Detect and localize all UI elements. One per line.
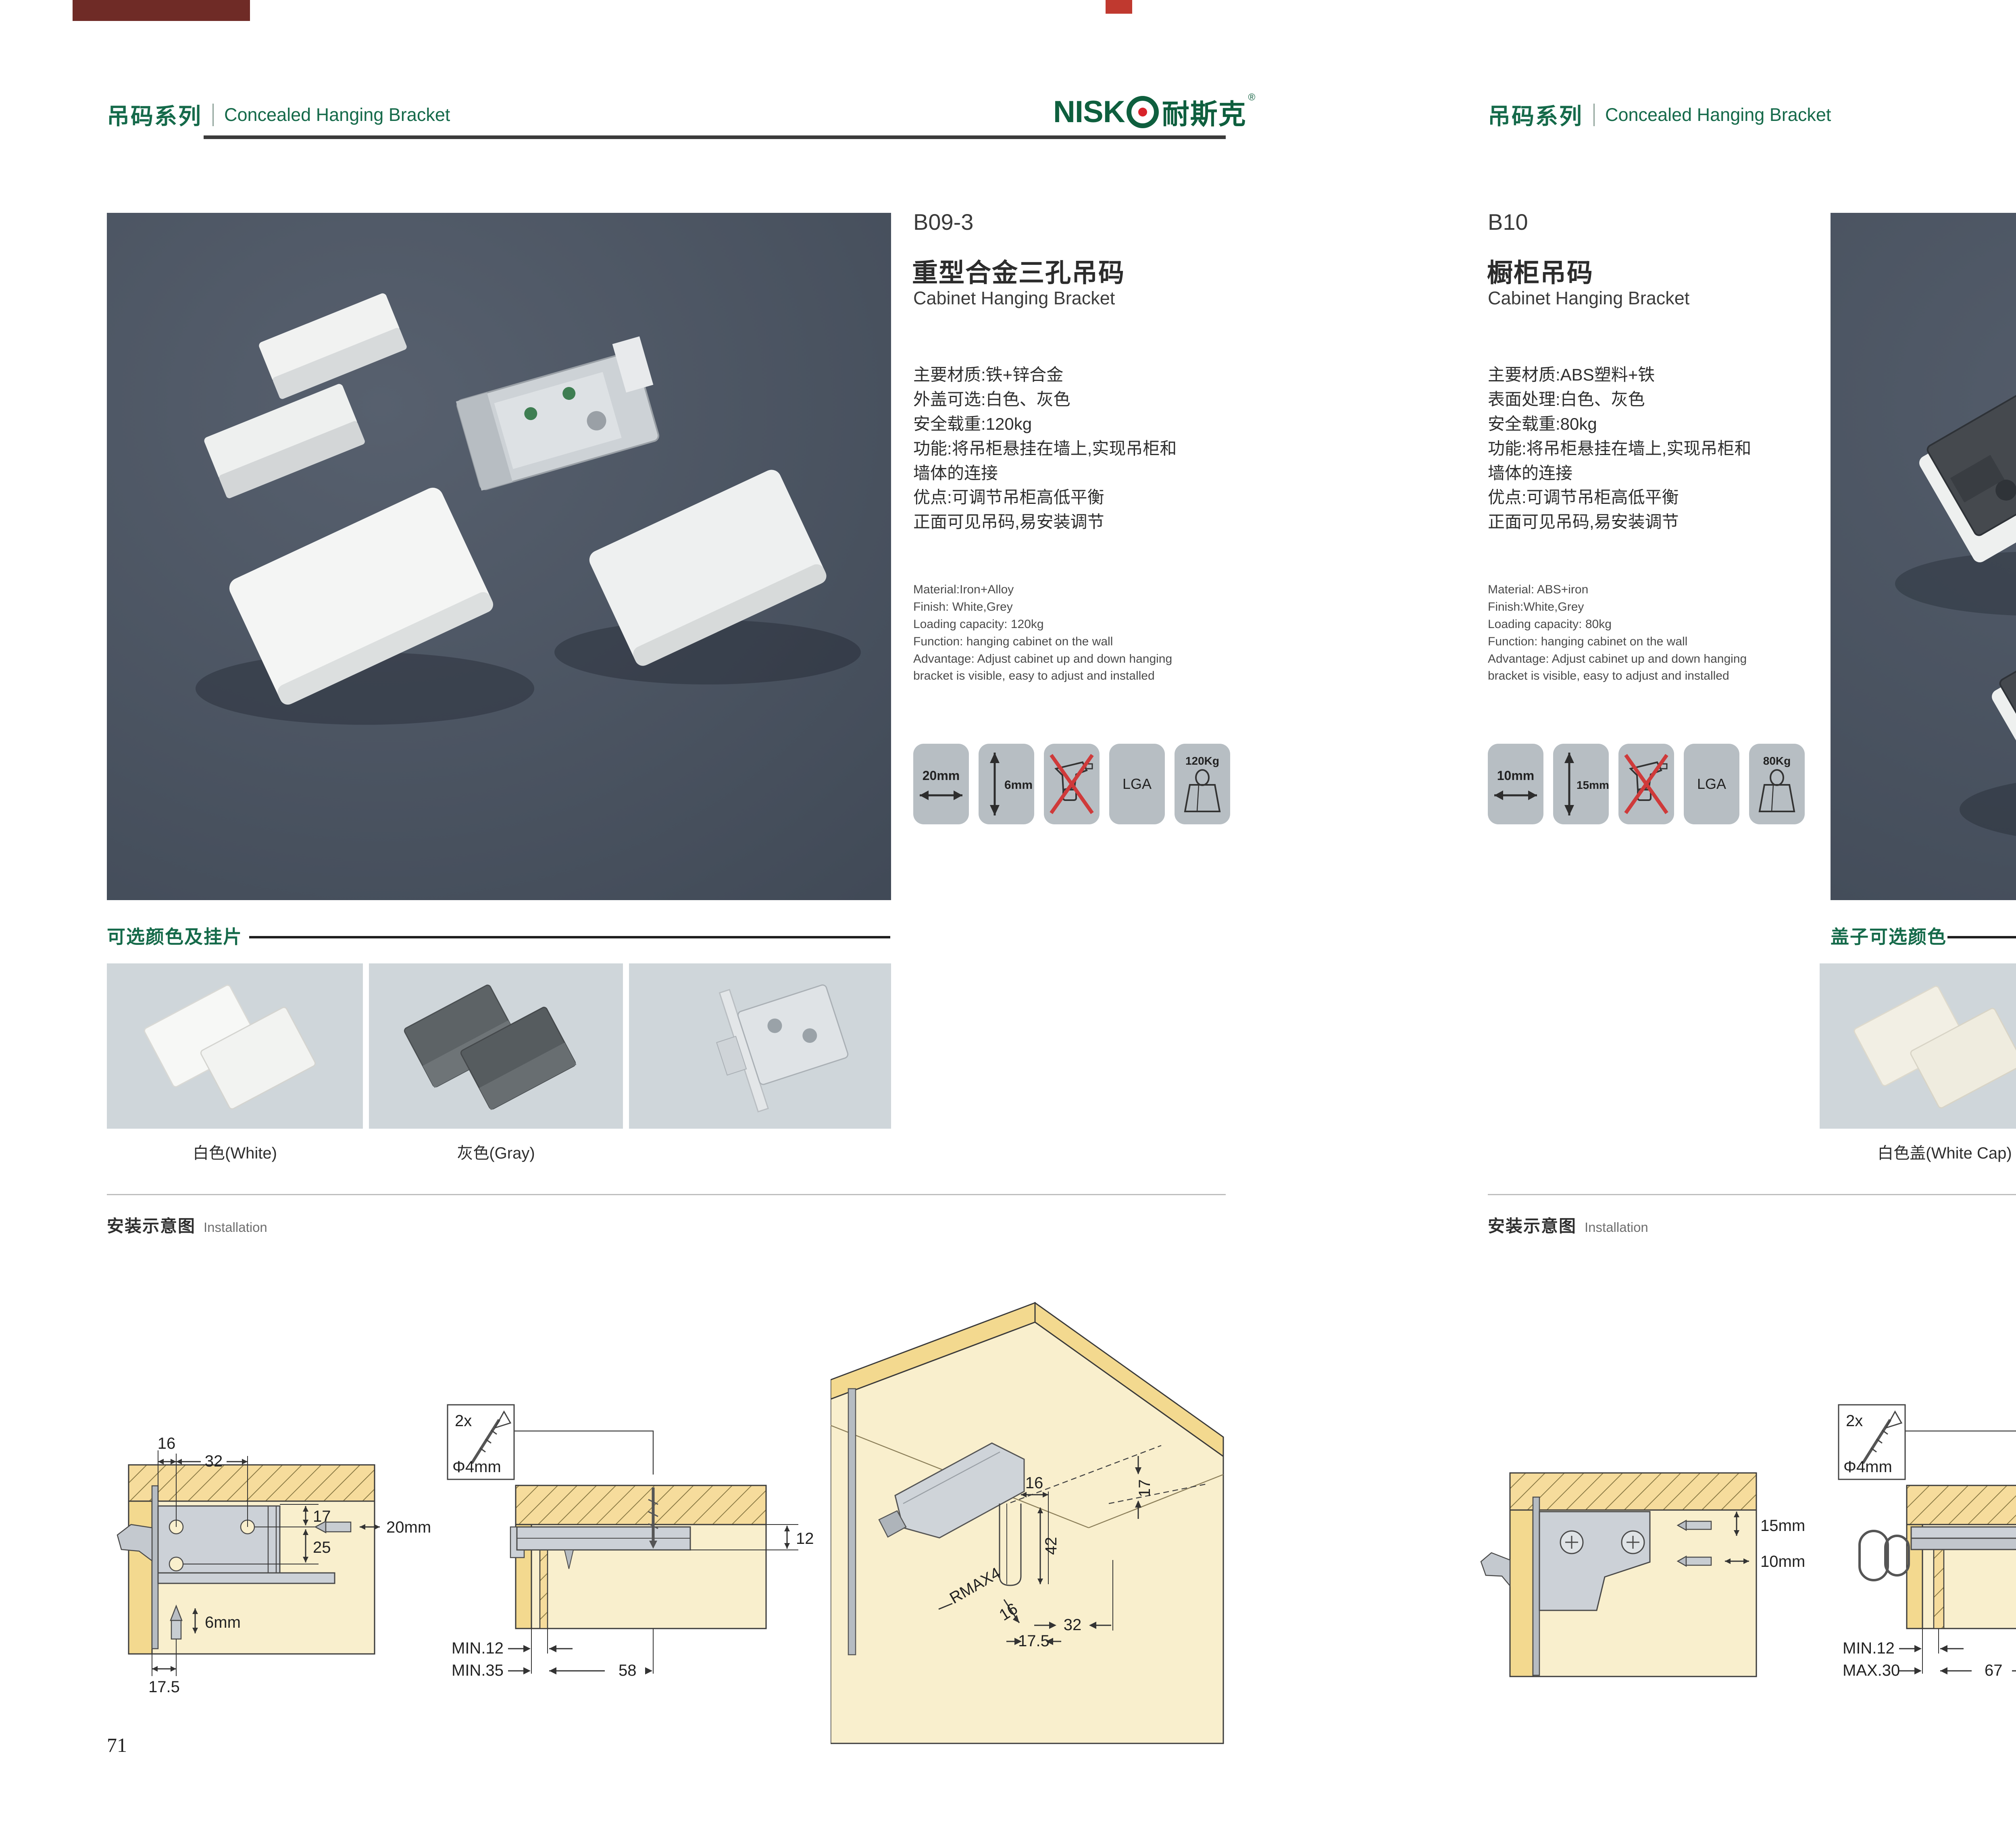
product-title-cn: 重型合金三孔吊码 xyxy=(912,252,1125,289)
spec-line: bracket is visible, easy to adjust and i… xyxy=(913,668,1341,685)
svg-text:6mm: 6mm xyxy=(205,1614,241,1631)
svg-text:15mm: 15mm xyxy=(1577,779,1609,791)
svg-text:MAX.30: MAX.30 xyxy=(1843,1662,1900,1679)
page-number-left: 71 xyxy=(107,1733,127,1757)
svg-text:15mm: 15mm xyxy=(1760,1517,1805,1535)
install-title-en: Installation xyxy=(204,1220,267,1235)
svg-text:67: 67 xyxy=(1985,1662,2003,1679)
spec-line: 墙体的连接 xyxy=(913,461,1341,486)
print-mark-bar xyxy=(73,0,250,21)
svg-text:MIN.35: MIN.35 xyxy=(452,1662,504,1679)
badge-no-drill xyxy=(1618,744,1674,824)
weight-icon xyxy=(1185,770,1220,811)
svg-text:25: 25 xyxy=(313,1539,331,1556)
svg-text:Φ4mm: Φ4mm xyxy=(1843,1458,1892,1476)
badge-lga: LGA xyxy=(1109,744,1165,824)
colors-section-rule-left xyxy=(249,936,890,938)
spec-line: 主要材质:铁+锌合金 xyxy=(913,363,1341,387)
svg-text:120Kg: 120Kg xyxy=(1185,755,1219,767)
weight-icon xyxy=(1760,770,1794,811)
swatch-gray xyxy=(369,963,623,1129)
svg-text:32: 32 xyxy=(1064,1616,1082,1634)
divider-left xyxy=(107,1194,1226,1195)
svg-text:2x: 2x xyxy=(1846,1412,1863,1430)
brand-logo-left: NISK 耐斯克 ® xyxy=(1053,92,1255,132)
colors-section-rule-right xyxy=(1947,936,2016,938)
svg-text:2x: 2x xyxy=(455,1412,472,1430)
svg-text:17.5: 17.5 xyxy=(1018,1632,1050,1650)
drill-crossed-icon xyxy=(1626,755,1667,813)
arrow-vertical-icon xyxy=(1564,753,1574,815)
svg-text:10mm: 10mm xyxy=(1497,768,1535,783)
svg-text:10mm: 10mm xyxy=(1760,1553,1805,1570)
install-diagram-right-1: 15mm 10mm xyxy=(1472,1391,1835,1735)
product-photo-b09-3 xyxy=(107,213,891,900)
header-left: 吊码系列 Concealed Hanging Bracket xyxy=(107,98,450,131)
product-code: B10 xyxy=(1488,209,1528,235)
svg-text:MIN.12: MIN.12 xyxy=(452,1639,504,1657)
swatch-label-white-cap: 白色盖(White Cap) xyxy=(1820,1140,2016,1163)
series-title-cn: 吊码系列 xyxy=(107,98,202,131)
wire-hook xyxy=(1860,1531,1909,1580)
badge-height: 6mm xyxy=(979,744,1034,824)
install-title-cn: 安装示意图 xyxy=(1488,1213,1577,1237)
product-code: B09-3 xyxy=(913,209,973,235)
print-mark-small xyxy=(1106,0,1132,14)
badge-no-drill xyxy=(1044,744,1100,824)
install-diagram-left-2: 2x Φ4mm xyxy=(444,1367,847,1699)
badge-lga: LGA xyxy=(1684,744,1739,824)
spec-line: 外盖可选:白色、灰色 xyxy=(913,387,1341,412)
install-title-en: Installation xyxy=(1585,1220,1648,1235)
catalog-spread: 吊码系列 Concealed Hanging Bracket NISK 耐斯克 … xyxy=(0,0,2016,1847)
svg-text:32: 32 xyxy=(205,1452,223,1470)
svg-text:LGA: LGA xyxy=(1123,776,1152,792)
svg-text:42: 42 xyxy=(1042,1537,1060,1555)
swatch-hanging-plate xyxy=(629,963,891,1129)
header-rule-left xyxy=(204,135,1226,139)
divider-right xyxy=(1488,1194,2016,1195)
specs-en: Material:Iron+Alloy Finish: White,Grey L… xyxy=(913,581,1341,685)
install-diagram-right-2: 2x Φ4mm xyxy=(1835,1367,2016,1699)
install-title-right: 安装示意图 Installation xyxy=(1488,1213,1648,1237)
svg-text:17: 17 xyxy=(1136,1479,1154,1498)
series-title-en: Concealed Hanging Bracket xyxy=(224,104,450,125)
swatch-label-white: 白色(White) xyxy=(107,1140,363,1163)
spec-line: Function: hanging cabinet on the wall xyxy=(913,633,1341,651)
svg-text:MIN.12: MIN.12 xyxy=(1843,1639,1895,1657)
svg-text:16: 16 xyxy=(158,1435,176,1452)
spec-line: 正面可见吊码,易安装调节 xyxy=(913,510,1341,535)
feature-badges-right: 10mm 15mm xyxy=(1488,744,1805,824)
series-title-en: Concealed Hanging Bracket xyxy=(1605,104,1831,125)
svg-text:6mm: 6mm xyxy=(1004,778,1033,792)
feature-badges-left: 20mm 6mm xyxy=(913,744,1230,824)
specs-cn: 主要材质:铁+锌合金 外盖可选:白色、灰色 安全载重:120kg 功能:将吊柜悬… xyxy=(913,363,1341,535)
install-title-cn: 安装示意图 xyxy=(107,1213,196,1237)
spec-line: Loading capacity: 120kg xyxy=(913,616,1341,633)
product-photo-b10 xyxy=(1831,213,2016,900)
install-title-left: 安装示意图 Installation xyxy=(107,1213,267,1237)
badge-load: 120Kg xyxy=(1175,744,1230,824)
spec-line: Advantage: Adjust cabinet up and down ha… xyxy=(913,651,1341,668)
spec-line: Finish: White,Grey xyxy=(913,599,1341,616)
svg-text:20mm: 20mm xyxy=(386,1518,431,1536)
drill-crossed-icon xyxy=(1051,755,1092,813)
logo-target-icon xyxy=(1127,96,1159,128)
header-right: 吊码系列 Concealed Hanging Bracket xyxy=(1488,98,1831,131)
logo-latin: NISK xyxy=(1053,94,1125,129)
svg-text:58: 58 xyxy=(619,1662,637,1679)
product-title-en: Cabinet Hanging Bracket xyxy=(913,288,1115,309)
install-diagram-left-1: 16 32 17 25 20mm 6mm xyxy=(109,1367,480,1703)
header-divider xyxy=(212,104,214,126)
spec-line: 安全载重:120kg xyxy=(913,412,1341,437)
install-diagram-left-3: 16 42 RMAX4 16 32 17.5 17 xyxy=(831,1302,1234,1760)
svg-text:20mm: 20mm xyxy=(923,768,960,783)
badge-width: 10mm xyxy=(1488,744,1543,824)
colors-section-title-left: 可选颜色及挂片 xyxy=(107,922,242,949)
logo-reg-mark: ® xyxy=(1248,92,1256,103)
arrow-horizontal-icon xyxy=(920,790,962,800)
spec-line: Material:Iron+Alloy xyxy=(913,581,1341,599)
svg-text:16: 16 xyxy=(1025,1474,1043,1492)
header-divider xyxy=(1593,104,1595,126)
series-title-cn: 吊码系列 xyxy=(1488,98,1583,131)
arrow-horizontal-icon xyxy=(1494,790,1537,800)
svg-text:LGA: LGA xyxy=(1697,776,1726,792)
badge-width: 20mm xyxy=(913,744,969,824)
product-title-en: Cabinet Hanging Bracket xyxy=(1488,288,1689,309)
logo-cn: 耐斯克 xyxy=(1162,92,1247,132)
badge-load: 80Kg xyxy=(1749,744,1805,824)
svg-text:17.5: 17.5 xyxy=(148,1678,180,1696)
spec-line: 优点:可调节吊柜高低平衡 xyxy=(913,485,1341,510)
arrow-vertical-icon xyxy=(990,753,1000,815)
colors-section-title-right: 盖子可选颜色 xyxy=(1831,922,1947,949)
badge-height: 15mm xyxy=(1553,744,1609,824)
svg-text:12: 12 xyxy=(796,1530,814,1547)
svg-text:Φ4mm: Φ4mm xyxy=(452,1458,501,1476)
product-title-cn: 橱柜吊码 xyxy=(1487,252,1593,289)
swatch-white xyxy=(107,963,363,1129)
swatch-white-cap xyxy=(1820,963,2016,1129)
svg-text:80Kg: 80Kg xyxy=(1763,755,1791,767)
spec-line: 功能:将吊柜悬挂在墙上,实现吊柜和 xyxy=(913,437,1341,461)
hanger-hook xyxy=(1481,1553,1510,1586)
swatch-label-gray: 灰色(Gray) xyxy=(369,1140,623,1163)
